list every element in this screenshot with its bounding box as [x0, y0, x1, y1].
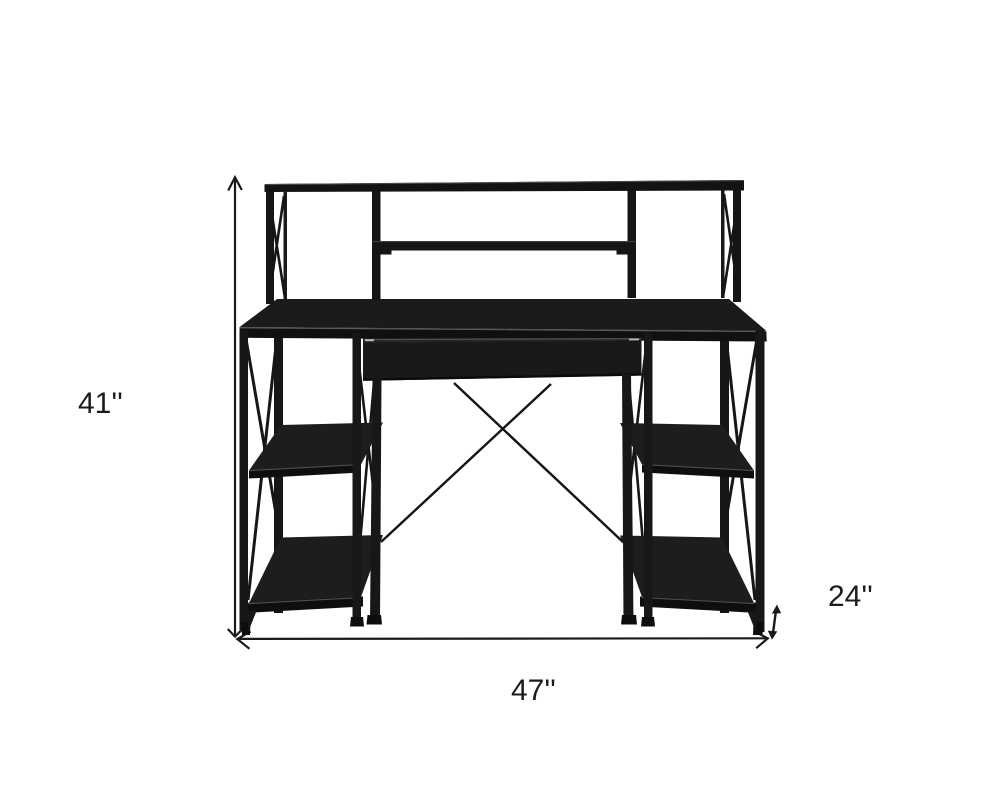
- svg-text:24'': 24'': [828, 580, 873, 613]
- svg-text:41'': 41'': [78, 387, 123, 420]
- svg-text:47'': 47'': [511, 674, 556, 707]
